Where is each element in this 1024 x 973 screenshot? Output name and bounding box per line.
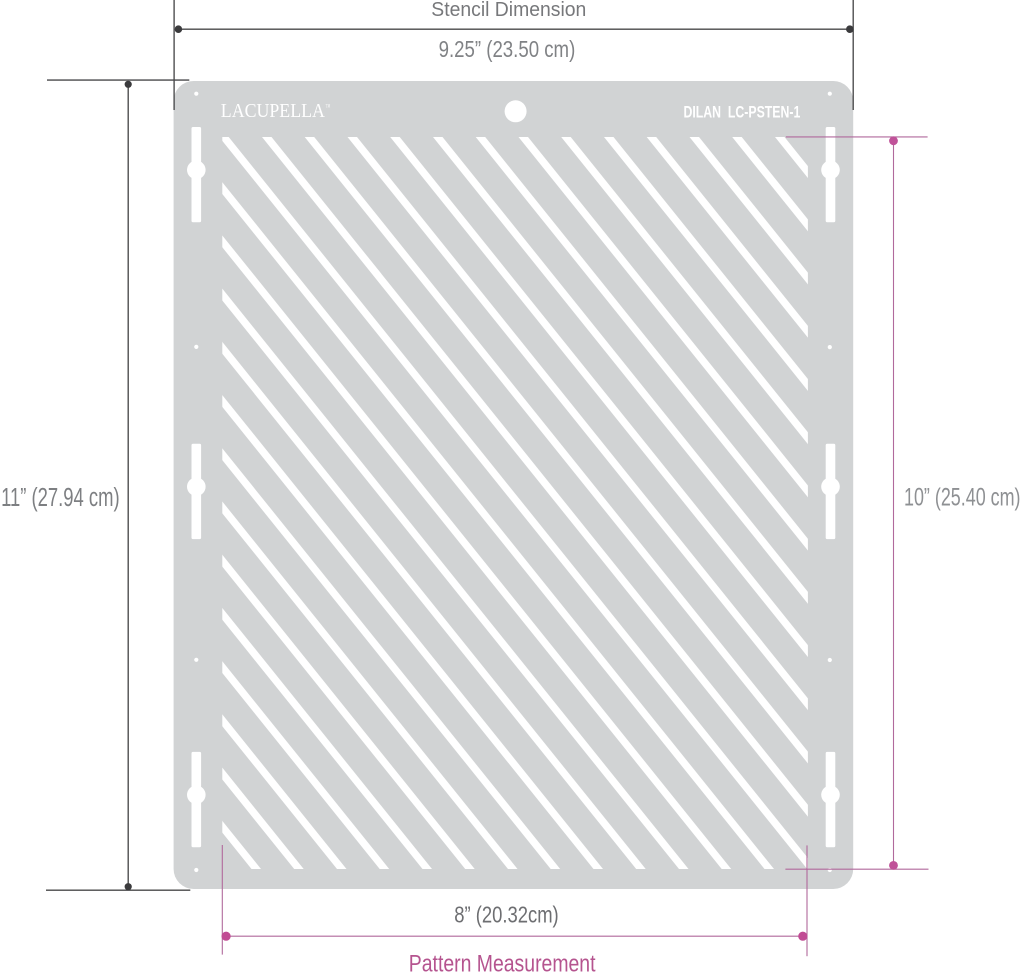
- svg-text:8” (20.32cm): 8” (20.32cm): [454, 901, 559, 927]
- svg-text:DILAN LC-PSTEN-1: DILAN LC-PSTEN-1: [684, 103, 801, 121]
- svg-text:LACUPELLA: LACUPELLA: [221, 101, 325, 122]
- svg-text:Pattern Measurement: Pattern Measurement: [409, 951, 596, 973]
- svg-text:Stencil Dimension: Stencil Dimension: [431, 0, 586, 21]
- svg-text:TM: TM: [326, 104, 331, 109]
- svg-text:9.25” (23.50 cm): 9.25” (23.50 cm): [439, 36, 576, 62]
- svg-text:11” (27.94 cm): 11” (27.94 cm): [1, 484, 120, 512]
- svg-text:10” (25.40 cm): 10” (25.40 cm): [904, 485, 1021, 512]
